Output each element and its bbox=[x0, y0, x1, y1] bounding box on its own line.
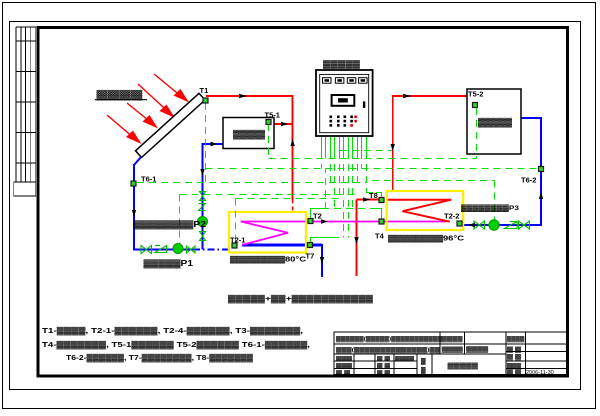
svg-text:T8: T8 bbox=[369, 191, 378, 200]
svg-text:▓▓▓▓▓P1: ▓▓▓▓▓P1 bbox=[144, 259, 194, 269]
svg-text:▓▓▓▓▓: ▓▓▓▓▓ bbox=[323, 60, 360, 70]
svg-text:▓▓▓▓: ▓▓▓▓ bbox=[466, 346, 489, 353]
svg-text:▓▓▓▓: ▓▓▓▓ bbox=[233, 129, 266, 140]
svg-text:▓ ▓: ▓ ▓ bbox=[507, 369, 521, 376]
svg-text:▓▓▓: ▓▓▓ bbox=[336, 355, 353, 362]
svg-text:▓▓▓▓: ▓▓▓▓ bbox=[507, 335, 525, 342]
svg-text:▓▓▓▓: ▓▓▓▓ bbox=[395, 355, 415, 362]
svg-text:▓▓▓▓: ▓▓▓▓ bbox=[442, 346, 463, 353]
svg-text:T5-2: T5-2 bbox=[468, 90, 483, 99]
svg-text:▓: ▓ bbox=[421, 358, 426, 365]
svg-text:▓▓▓▓: ▓▓▓▓ bbox=[478, 117, 513, 128]
svg-text:▓▓▓▓▓▓(▓▓▓▓▓)▓▓▓▓▓▓▓▓▓▓▓: ▓▓▓▓▓▓(▓▓▓▓▓)▓▓▓▓▓▓▓▓▓▓▓ bbox=[336, 335, 443, 342]
svg-text:▓▓▓▓▓▓▓▓P2: ▓▓▓▓▓▓▓▓P2 bbox=[134, 220, 207, 230]
svg-text:T1: T1 bbox=[200, 86, 209, 95]
svg-text:▓ ▓: ▓ ▓ bbox=[377, 355, 391, 362]
svg-text:▓: ▓ bbox=[421, 367, 426, 374]
svg-text:T6-2-▓▓▓▓▓▓, T7-▓▓▓▓▓▓▓▓, T8-▓: T6-2-▓▓▓▓▓▓, T7-▓▓▓▓▓▓▓▓, T8-▓▓▓▓▓▓▓ bbox=[66, 353, 254, 363]
svg-text:▓▓▓: ▓▓▓ bbox=[507, 362, 521, 369]
svg-text:T6-2: T6-2 bbox=[521, 176, 536, 185]
svg-text:▓▓▓▓▓: ▓▓▓▓▓ bbox=[448, 362, 479, 369]
svg-text:T4: T4 bbox=[375, 232, 385, 241]
svg-text:▓ ▓: ▓ ▓ bbox=[507, 346, 521, 353]
svg-text:T6-1: T6-1 bbox=[141, 175, 156, 184]
svg-text:T2-1: T2-1 bbox=[230, 236, 245, 245]
svg-text:T2: T2 bbox=[313, 212, 322, 221]
svg-text:▓▓▓▓▓▓▓▓96°C: ▓▓▓▓▓▓▓▓96°C bbox=[388, 234, 464, 242]
svg-text:▓▓▓: ▓▓▓ bbox=[336, 362, 353, 369]
svg-text:▓▓▓▓: ▓▓▓▓ bbox=[97, 90, 144, 101]
svg-text:T7: T7 bbox=[306, 252, 315, 261]
svg-text:▓▓▓(▓▓▓▓▓▓▓▓▓▓▓▓▓▓)▓▓: ▓▓▓(▓▓▓▓▓▓▓▓▓▓▓▓▓▓)▓▓ bbox=[336, 346, 441, 353]
svg-text:▓▓▓▓: ▓▓▓▓ bbox=[442, 335, 464, 342]
svg-text:▓▓▓▓▓+▓▓+▓▓▓▓▓▓▓▓▓▓▓: ▓▓▓▓▓+▓▓+▓▓▓▓▓▓▓▓▓▓▓ bbox=[228, 294, 374, 304]
svg-text:T5-1: T5-1 bbox=[265, 111, 280, 120]
svg-text:2006-11-30: 2006-11-30 bbox=[526, 370, 554, 376]
svg-text:T1-▓▓▓▓, T2-1-▓▓▓▓▓▓, T2-4-▓▓▓: T1-▓▓▓▓, T2-1-▓▓▓▓▓▓, T2-4-▓▓▓▓▓▓, T3-▓▓… bbox=[42, 326, 303, 336]
svg-text:▓ ▓: ▓ ▓ bbox=[507, 354, 521, 361]
svg-text:T4-▓▓▓▓▓▓▓, T5-1▓▓▓▓▓▓ T5-2▓▓▓: T4-▓▓▓▓▓▓▓, T5-1▓▓▓▓▓▓ T5-2▓▓▓▓▓▓ T6-1-▓… bbox=[42, 340, 310, 350]
svg-text:▓▓▓▓▓▓▓▓80°C: ▓▓▓▓▓▓▓▓80°C bbox=[230, 256, 306, 264]
svg-text:▓ ▓: ▓ ▓ bbox=[377, 369, 391, 376]
svg-text:▓ ▓: ▓ ▓ bbox=[336, 369, 351, 376]
svg-text:▓▓▓▓▓▓▓▓P3: ▓▓▓▓▓▓▓▓P3 bbox=[461, 204, 519, 212]
svg-text:▓ ▓: ▓ ▓ bbox=[377, 362, 391, 369]
svg-text:T2-2: T2-2 bbox=[444, 212, 459, 221]
